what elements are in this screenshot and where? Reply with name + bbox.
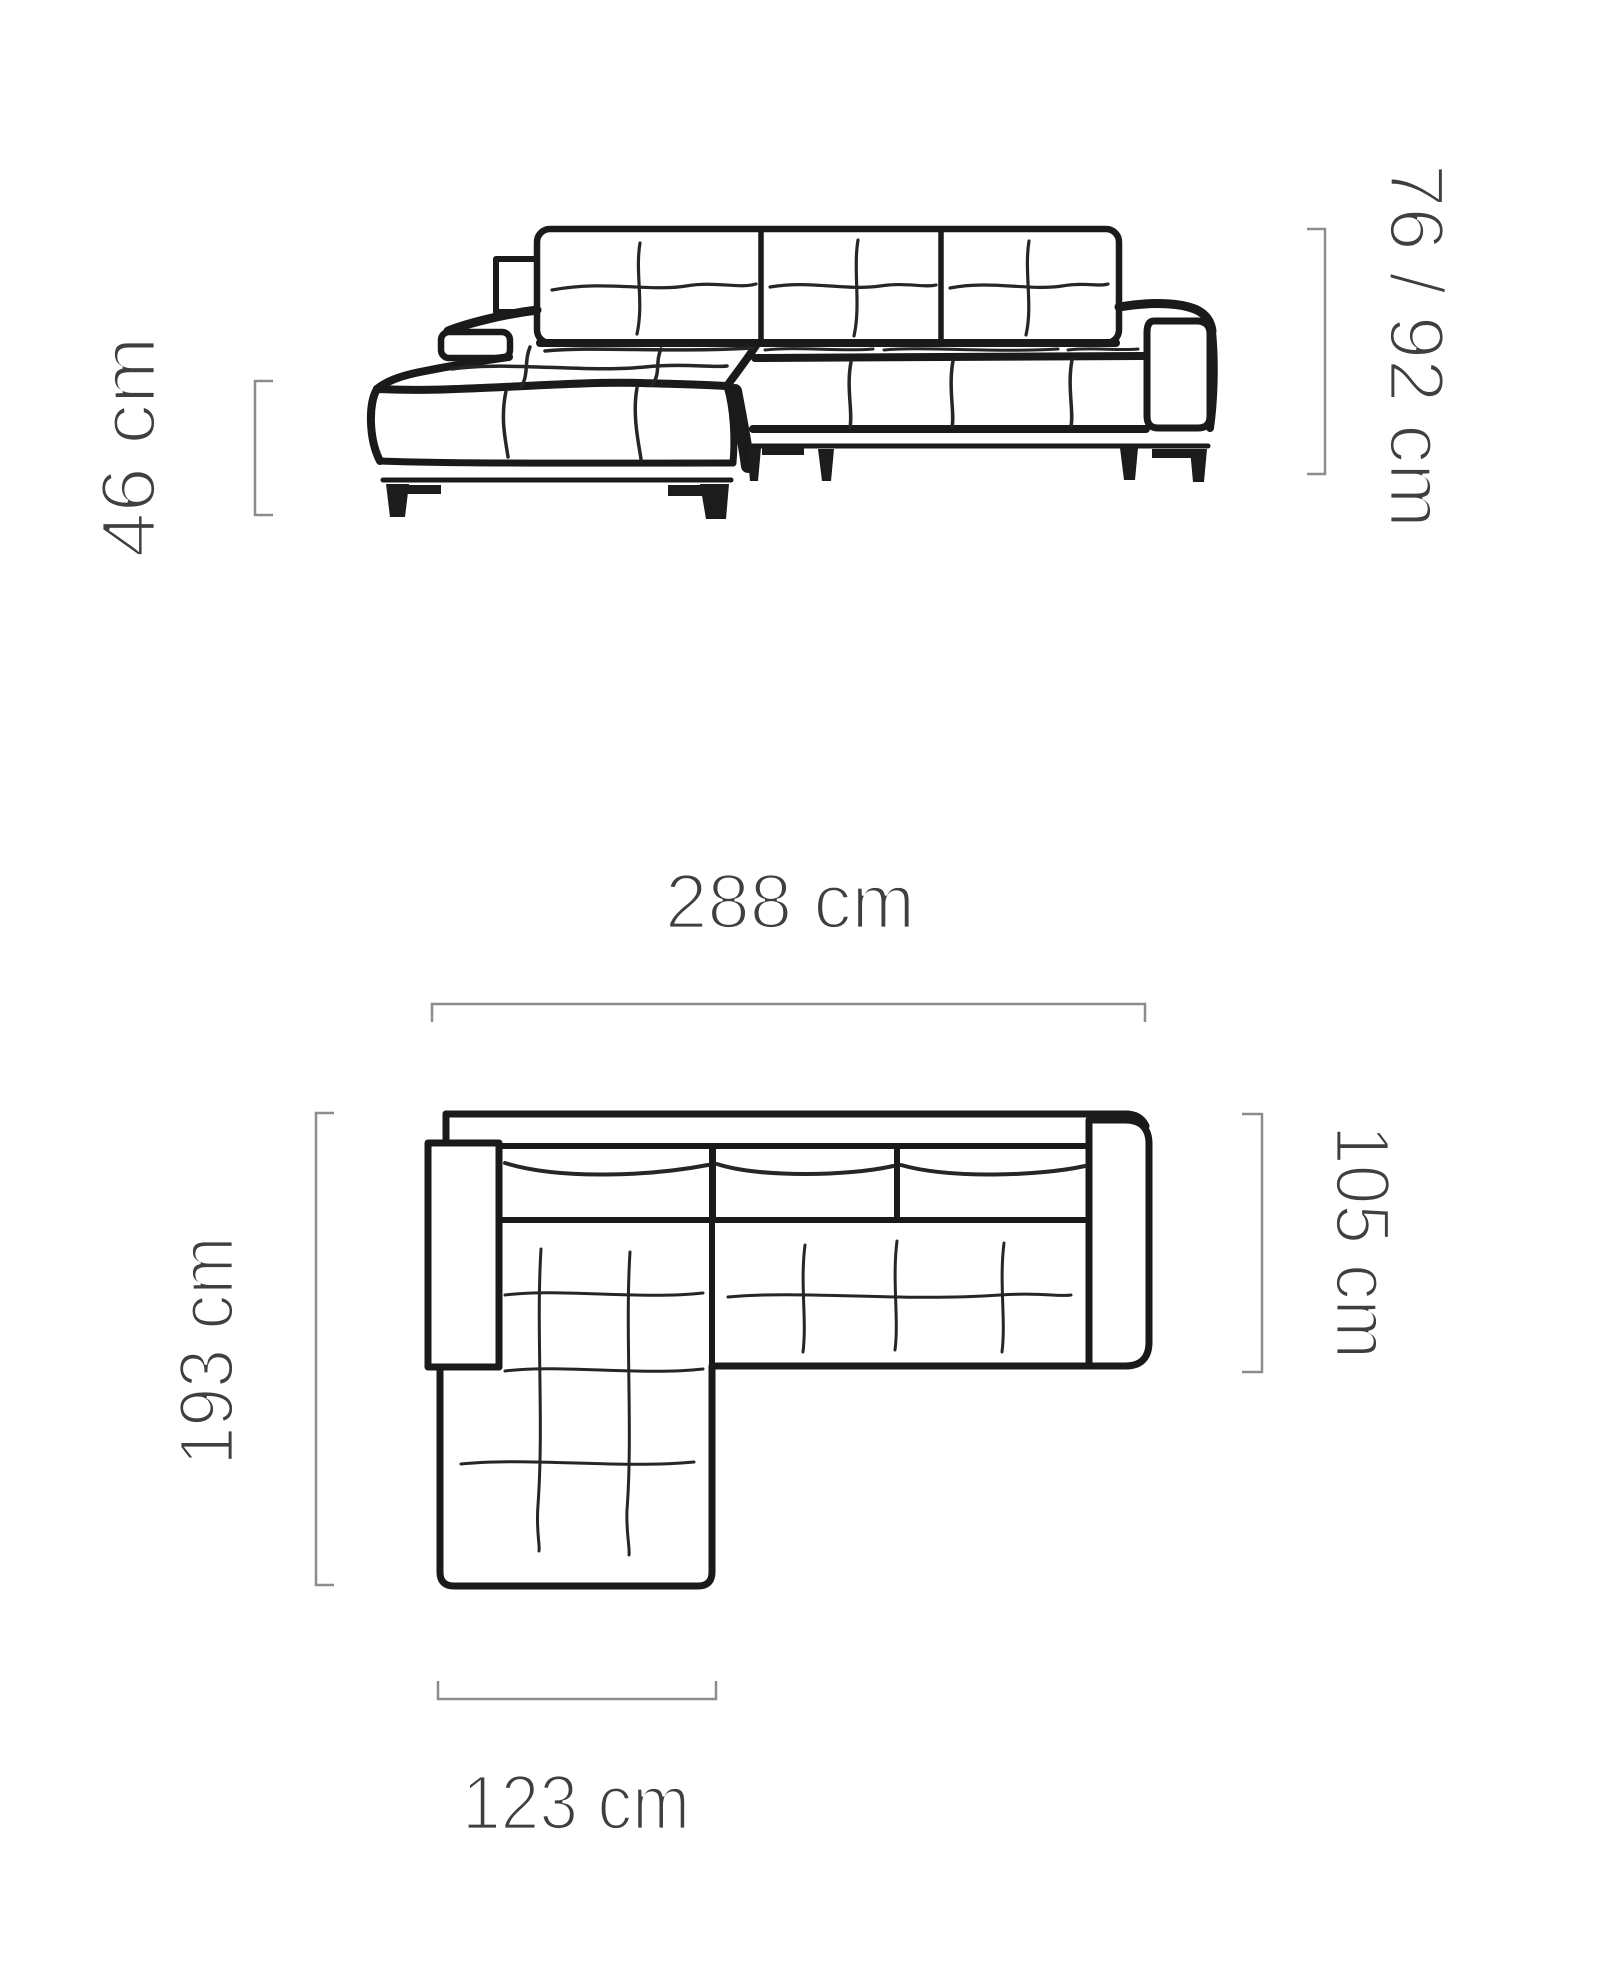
svg-text:288 cm: 288 cm: [665, 859, 915, 945]
svg-text:105 cm: 105 cm: [1319, 1125, 1405, 1359]
svg-text:46 cm: 46 cm: [86, 337, 172, 558]
svg-text:123 cm: 123 cm: [462, 1760, 690, 1846]
svg-text:193 cm: 193 cm: [164, 1237, 250, 1466]
svg-text:76 / 92 cm: 76 / 92 cm: [1373, 164, 1459, 528]
